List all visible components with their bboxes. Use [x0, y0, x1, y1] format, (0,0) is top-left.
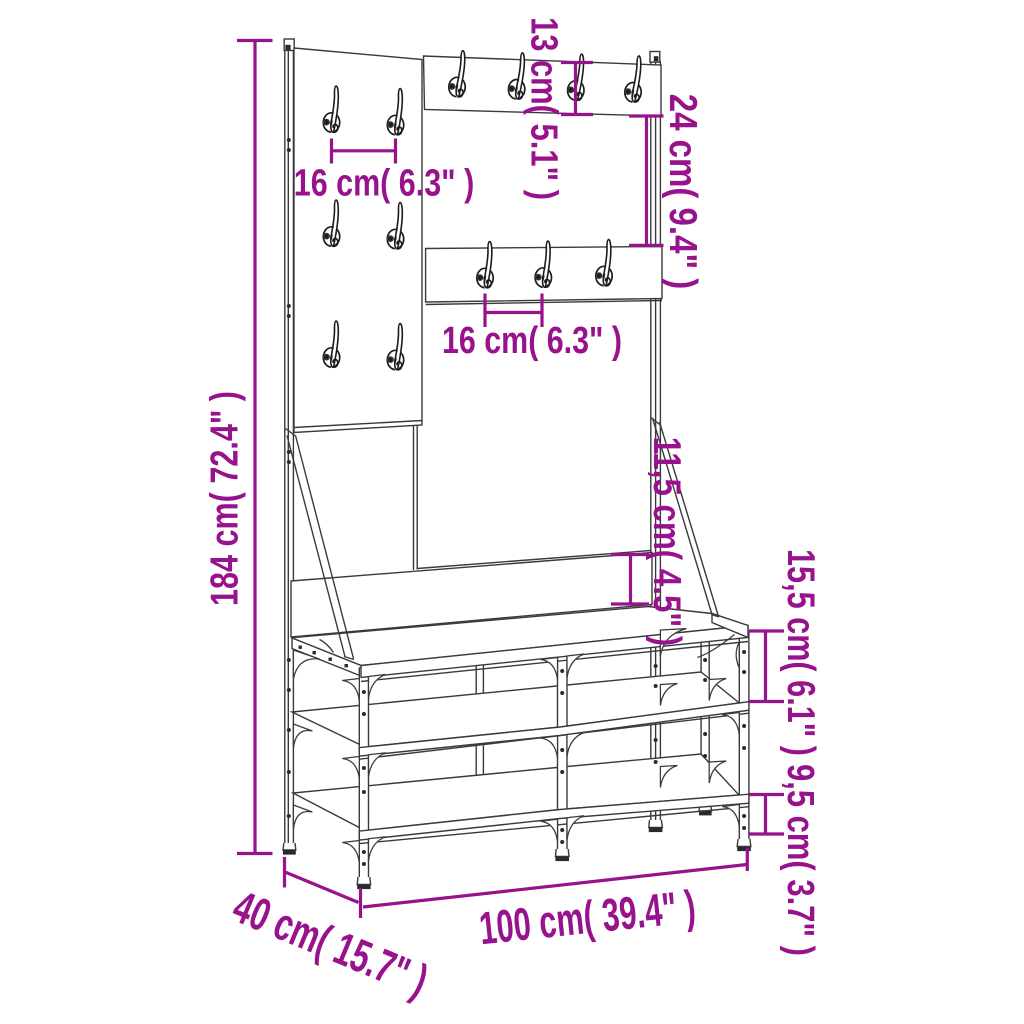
svg-text:184 cm( 72.4" ): 184 cm( 72.4" )	[204, 391, 247, 606]
svg-text:16 cm( 6.3" ): 16 cm( 6.3" )	[442, 320, 622, 362]
svg-text:9,5 cm( 3.7" ): 9,5 cm( 3.7" )	[779, 764, 821, 956]
svg-text:16 cm( 6.3" ): 16 cm( 6.3" )	[294, 163, 475, 205]
svg-text:24 cm( 9.4" ): 24 cm( 9.4" )	[661, 94, 704, 290]
svg-text:13 cm( 5.1" ): 13 cm( 5.1" )	[523, 17, 565, 200]
svg-text:11,5 cm( 4.5" ): 11,5 cm( 4.5" )	[645, 437, 688, 647]
svg-text:15,5 cm( 6.1" ): 15,5 cm( 6.1" )	[779, 549, 822, 756]
